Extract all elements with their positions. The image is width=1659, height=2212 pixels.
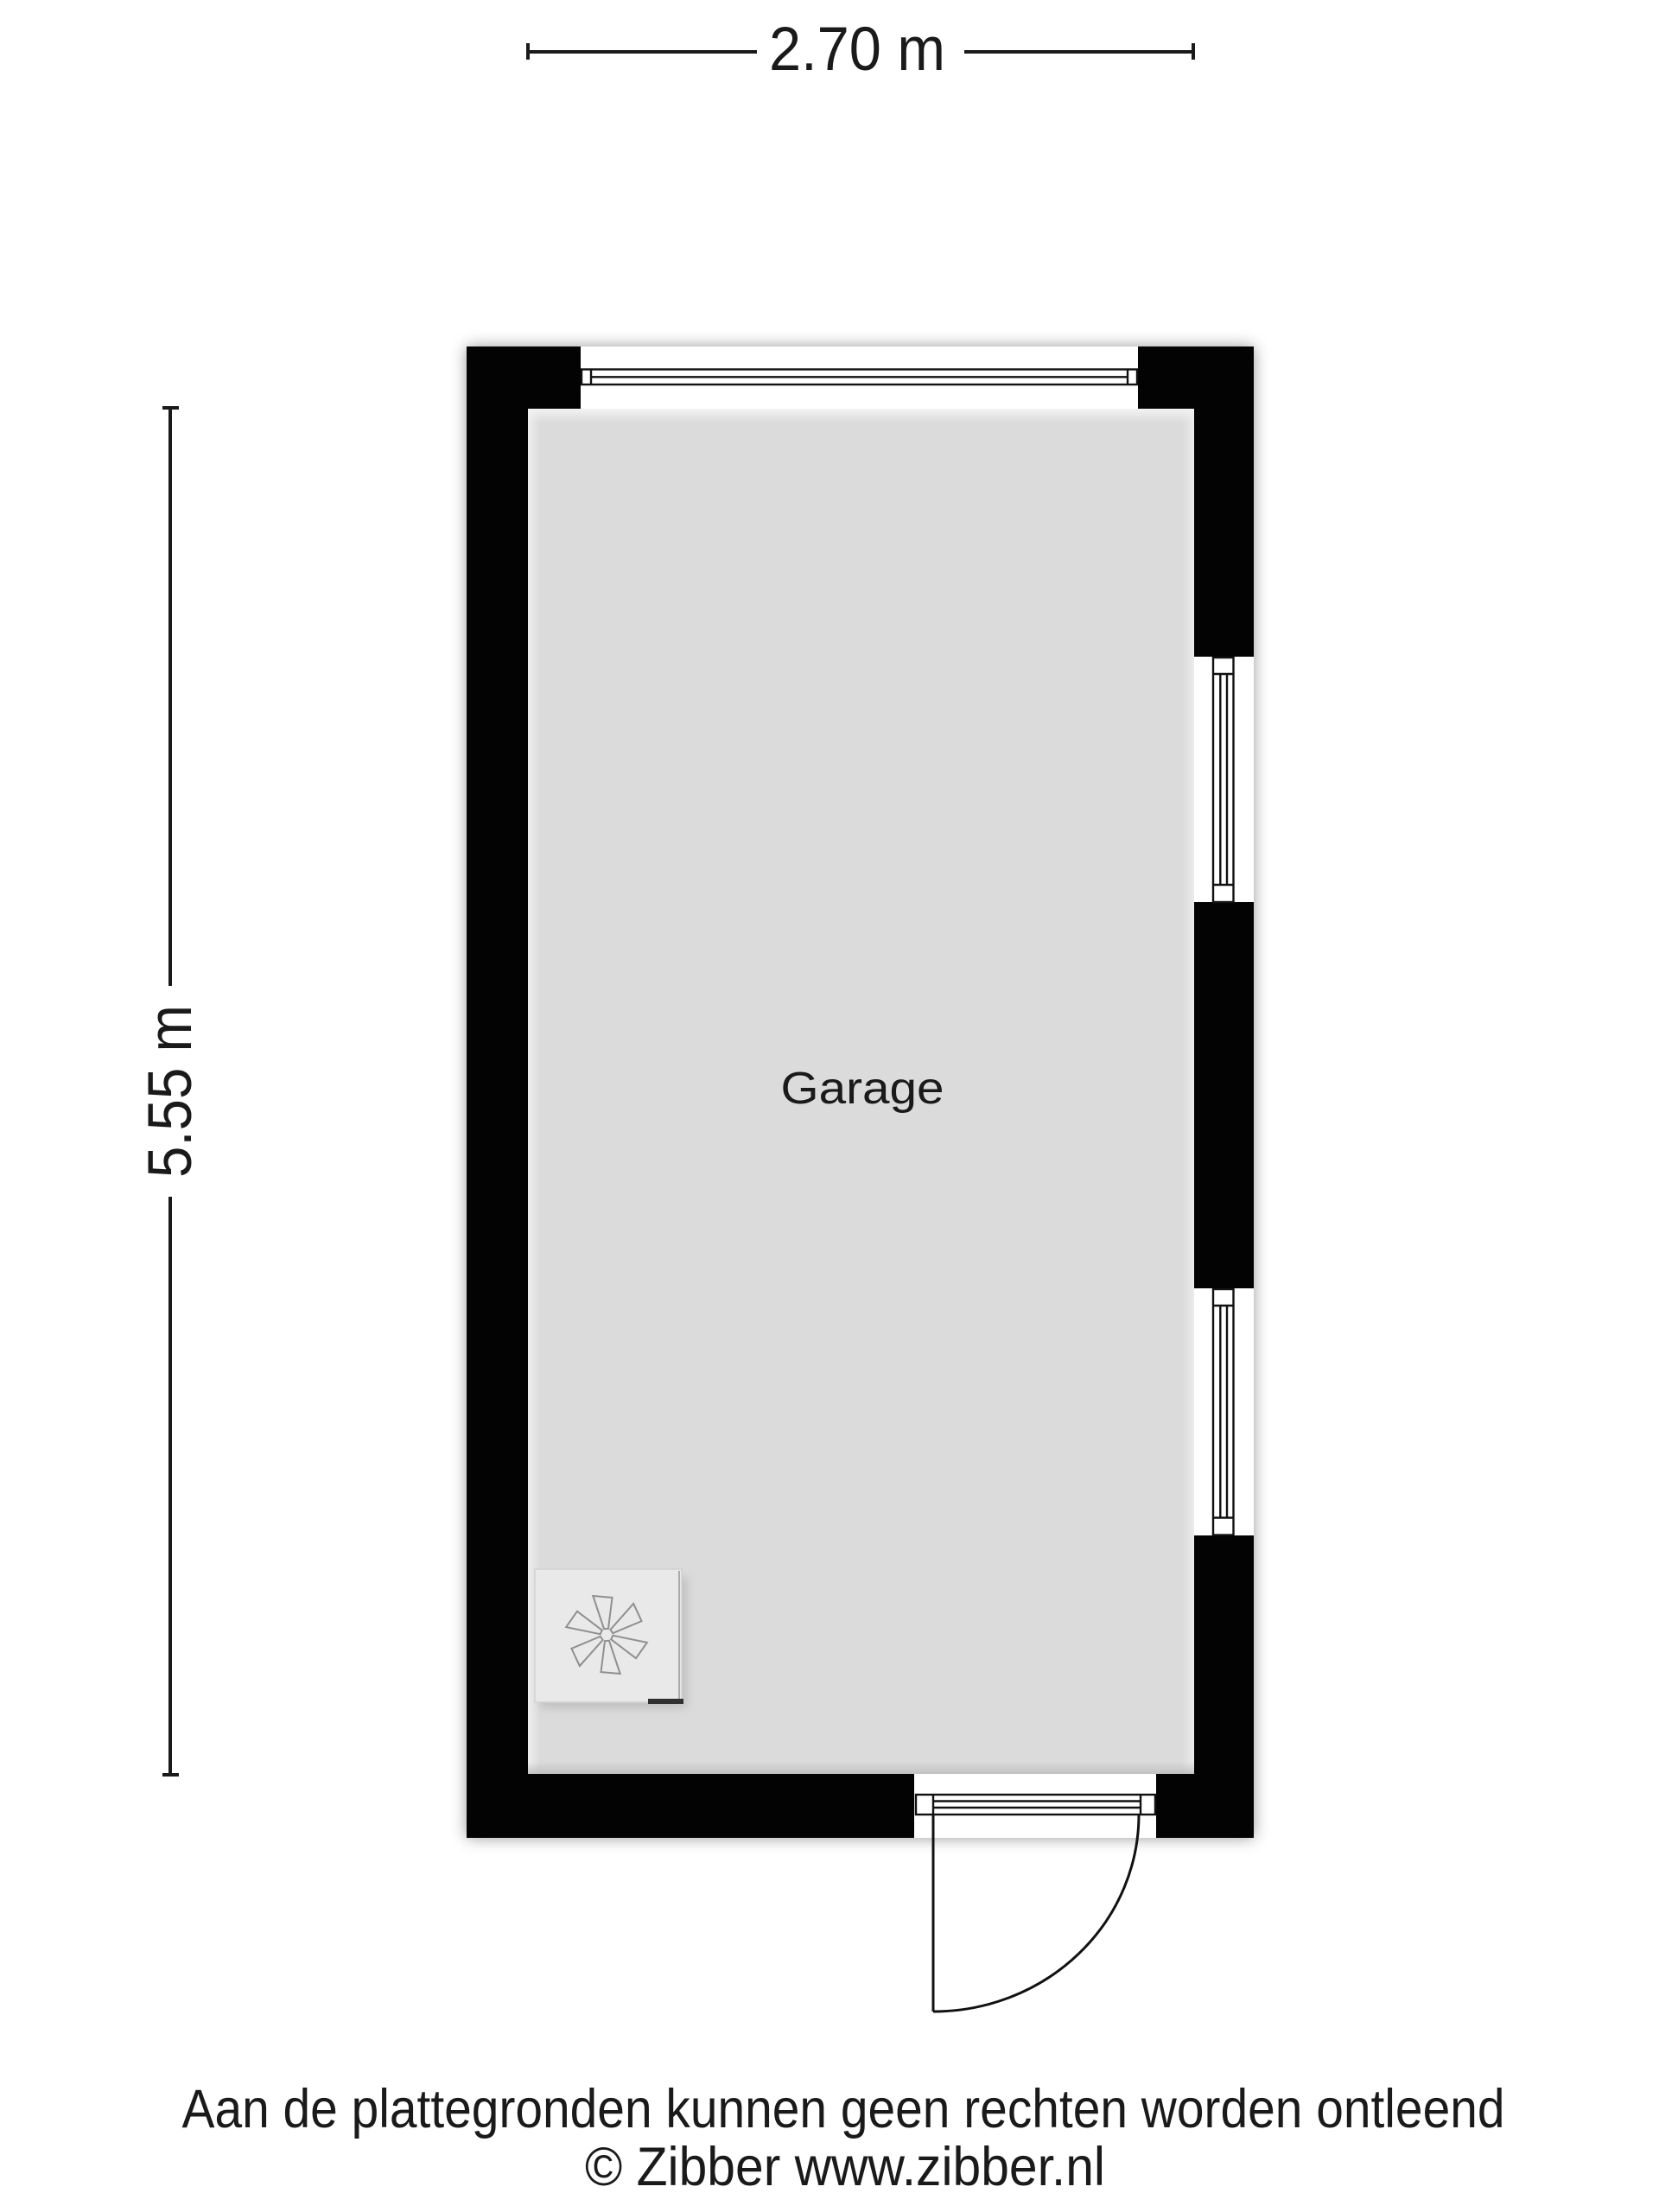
svg-text:5.55 m: 5.55 m [137,1005,205,1178]
svg-text:2.70 m: 2.70 m [769,16,945,84]
svg-text:© Zibber www.zibber.nl: © Zibber www.zibber.nl [585,2137,1105,2197]
svg-text:Garage: Garage [781,1064,944,1114]
svg-text:Aan de plattegronden kunnen ge: Aan de plattegronden kunnen geen rechten… [182,2079,1505,2139]
